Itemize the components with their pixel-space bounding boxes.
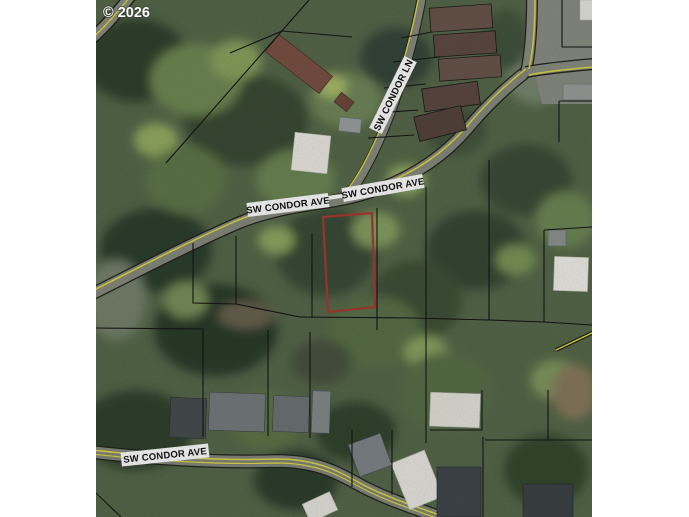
photo-grain-overlay xyxy=(96,0,592,517)
screenshot-page: SW CONDOR AVE SW CONDOR AVE SW CONDOR LN… xyxy=(0,0,689,517)
copyright-watermark: © 2026 xyxy=(103,5,150,21)
parcel-map-canvas: SW CONDOR AVE SW CONDOR AVE SW CONDOR LN… xyxy=(96,0,592,517)
aerial-parcel-map: SW CONDOR AVE SW CONDOR AVE SW CONDOR LN… xyxy=(96,0,592,517)
